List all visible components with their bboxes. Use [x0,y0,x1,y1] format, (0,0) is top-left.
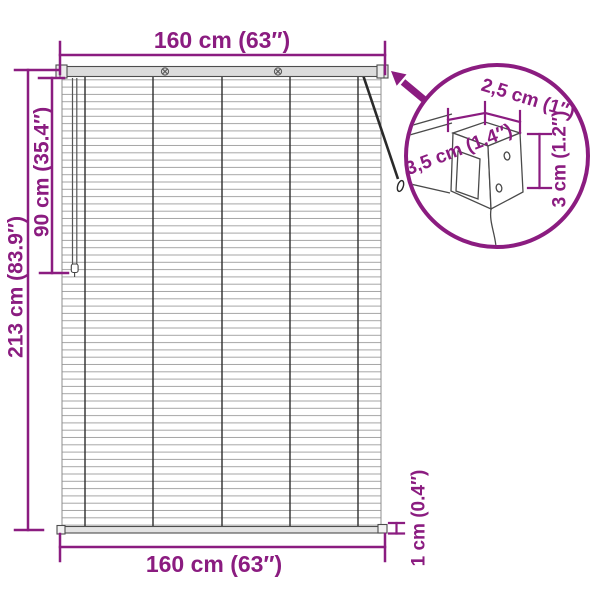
headrail-end-cap-right [377,65,388,78]
dim-slat-thickness-label: 1 cm (0.4″) [409,470,430,567]
pull-cord-tassel [71,264,78,273]
blind-drawing [56,65,405,534]
detail-callout-arrow [391,71,427,102]
headrail [57,67,387,77]
headrail-end-cap-left [56,65,67,78]
bottom-rail-cap-right [378,525,387,534]
dim-partial-height-label: 90 cm (35.4″) [31,107,54,237]
dim-slat-thickness [389,523,404,534]
bottom-rail [61,527,381,534]
dim-bottom-width-label: 160 cm (63″) [146,551,282,577]
diagram-canvas: 160 cm (63″) 160 cm (63″) 213 cm (83.9″)… [0,0,600,600]
bottom-rail-cap-left [57,526,65,535]
blind-dimension-diagram: 160 cm (63″) 160 cm (63″) 213 cm (83.9″)… [0,0,600,600]
wand-handle [396,180,405,192]
dim-bracket-height-label: 3 cm (1.2″) [550,111,571,208]
dim-total-height-label: 213 cm (83.9″) [5,216,28,358]
dim-top-width-label: 160 cm (63″) [154,27,290,53]
